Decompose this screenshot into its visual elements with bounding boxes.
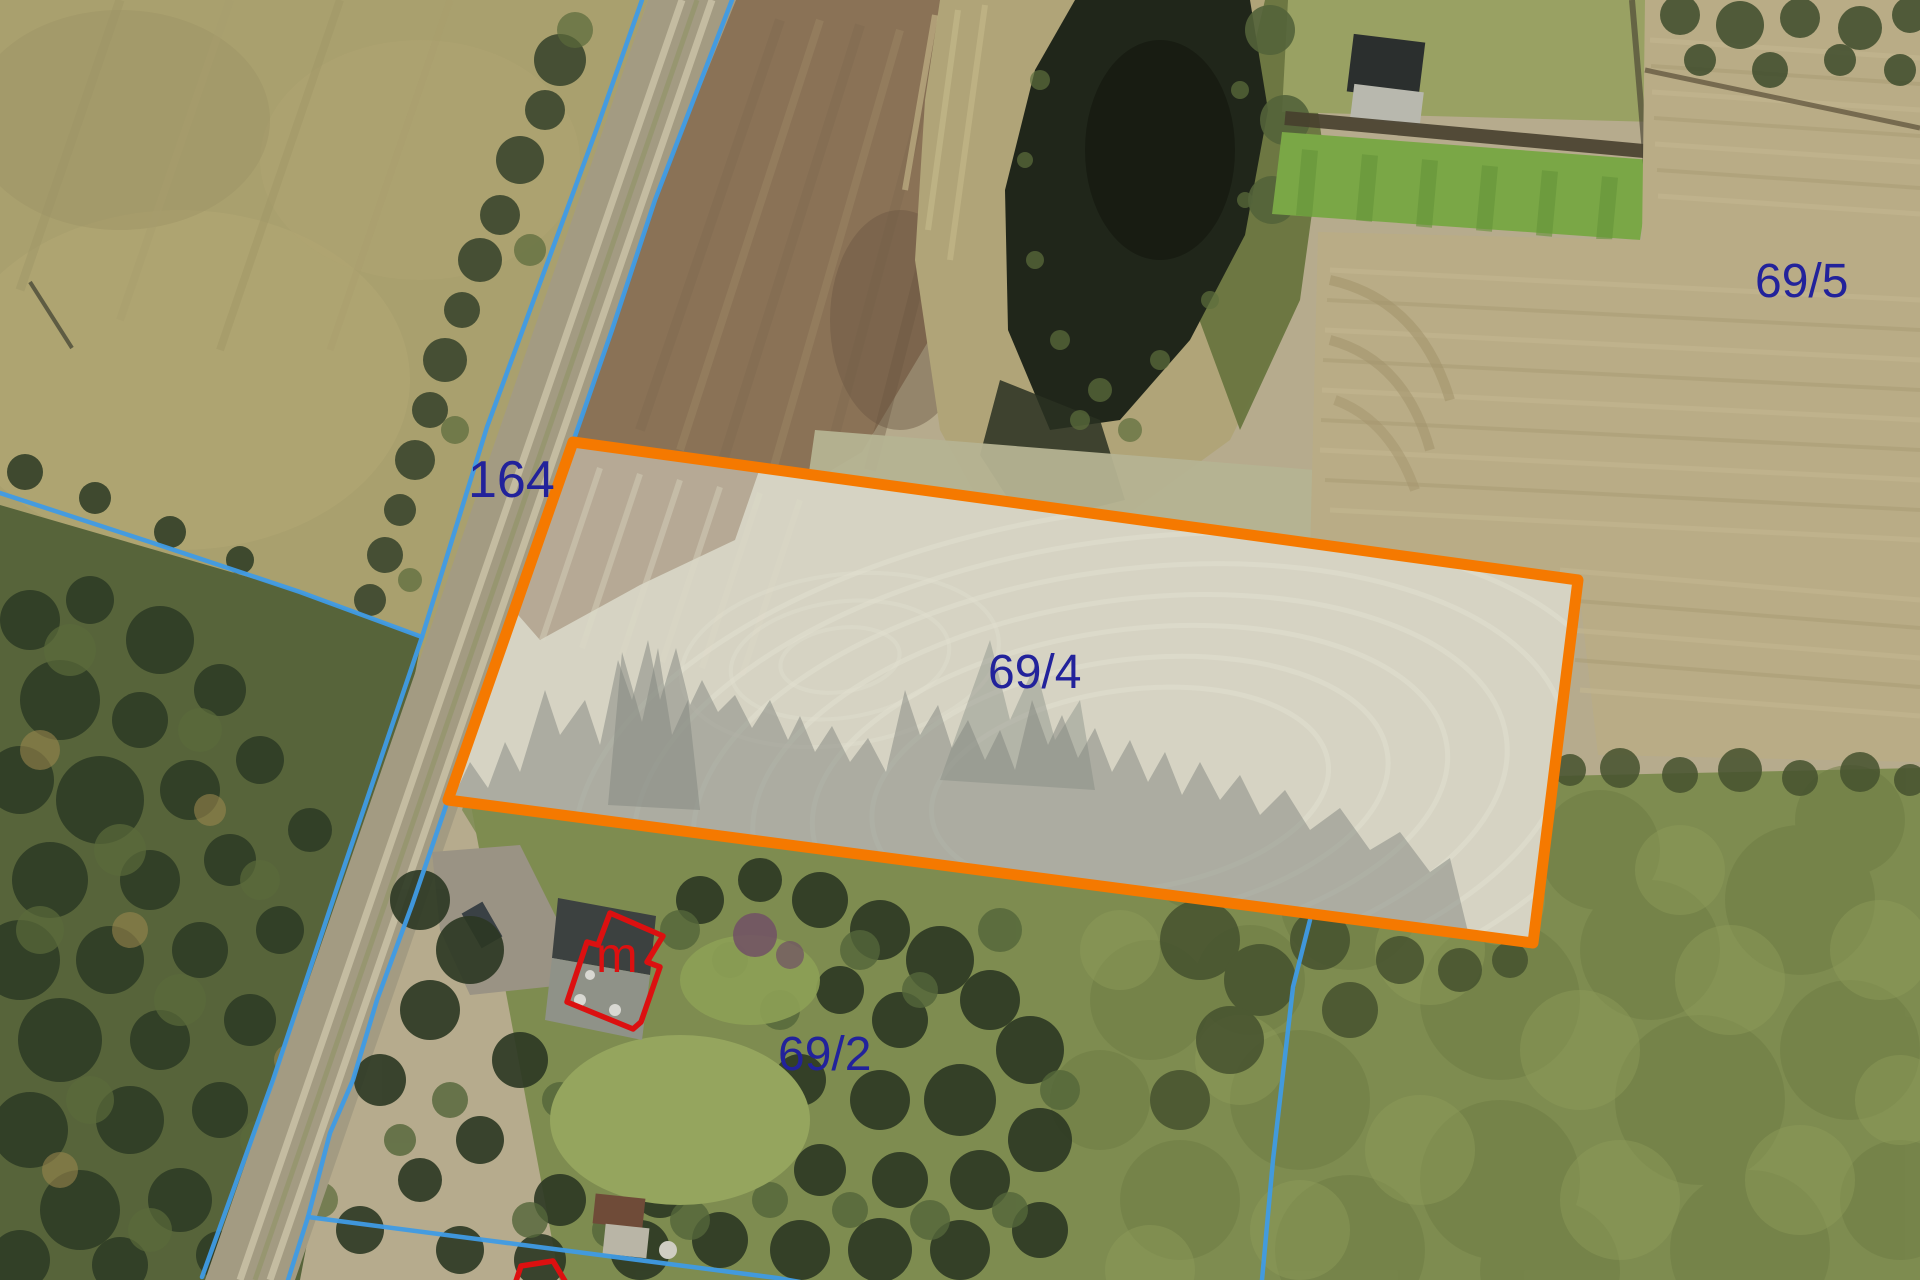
flowering-bush <box>733 913 777 957</box>
aerial-map[interactable]: 164 69/5 69/4 69/2 m <box>0 0 1920 1280</box>
building-label-m: m <box>596 927 638 983</box>
parcel-label-69-4: 69/4 <box>988 646 1081 699</box>
parcel-label-69-5: 69/5 <box>1755 255 1848 308</box>
outbuilding <box>593 1193 646 1228</box>
map-viewport[interactable]: 164 69/5 69/4 69/2 m <box>0 0 1920 1280</box>
parcel-label-69-2: 69/2 <box>778 1028 871 1081</box>
lawn <box>550 1035 810 1205</box>
parcel-label-164: 164 <box>468 451 555 509</box>
